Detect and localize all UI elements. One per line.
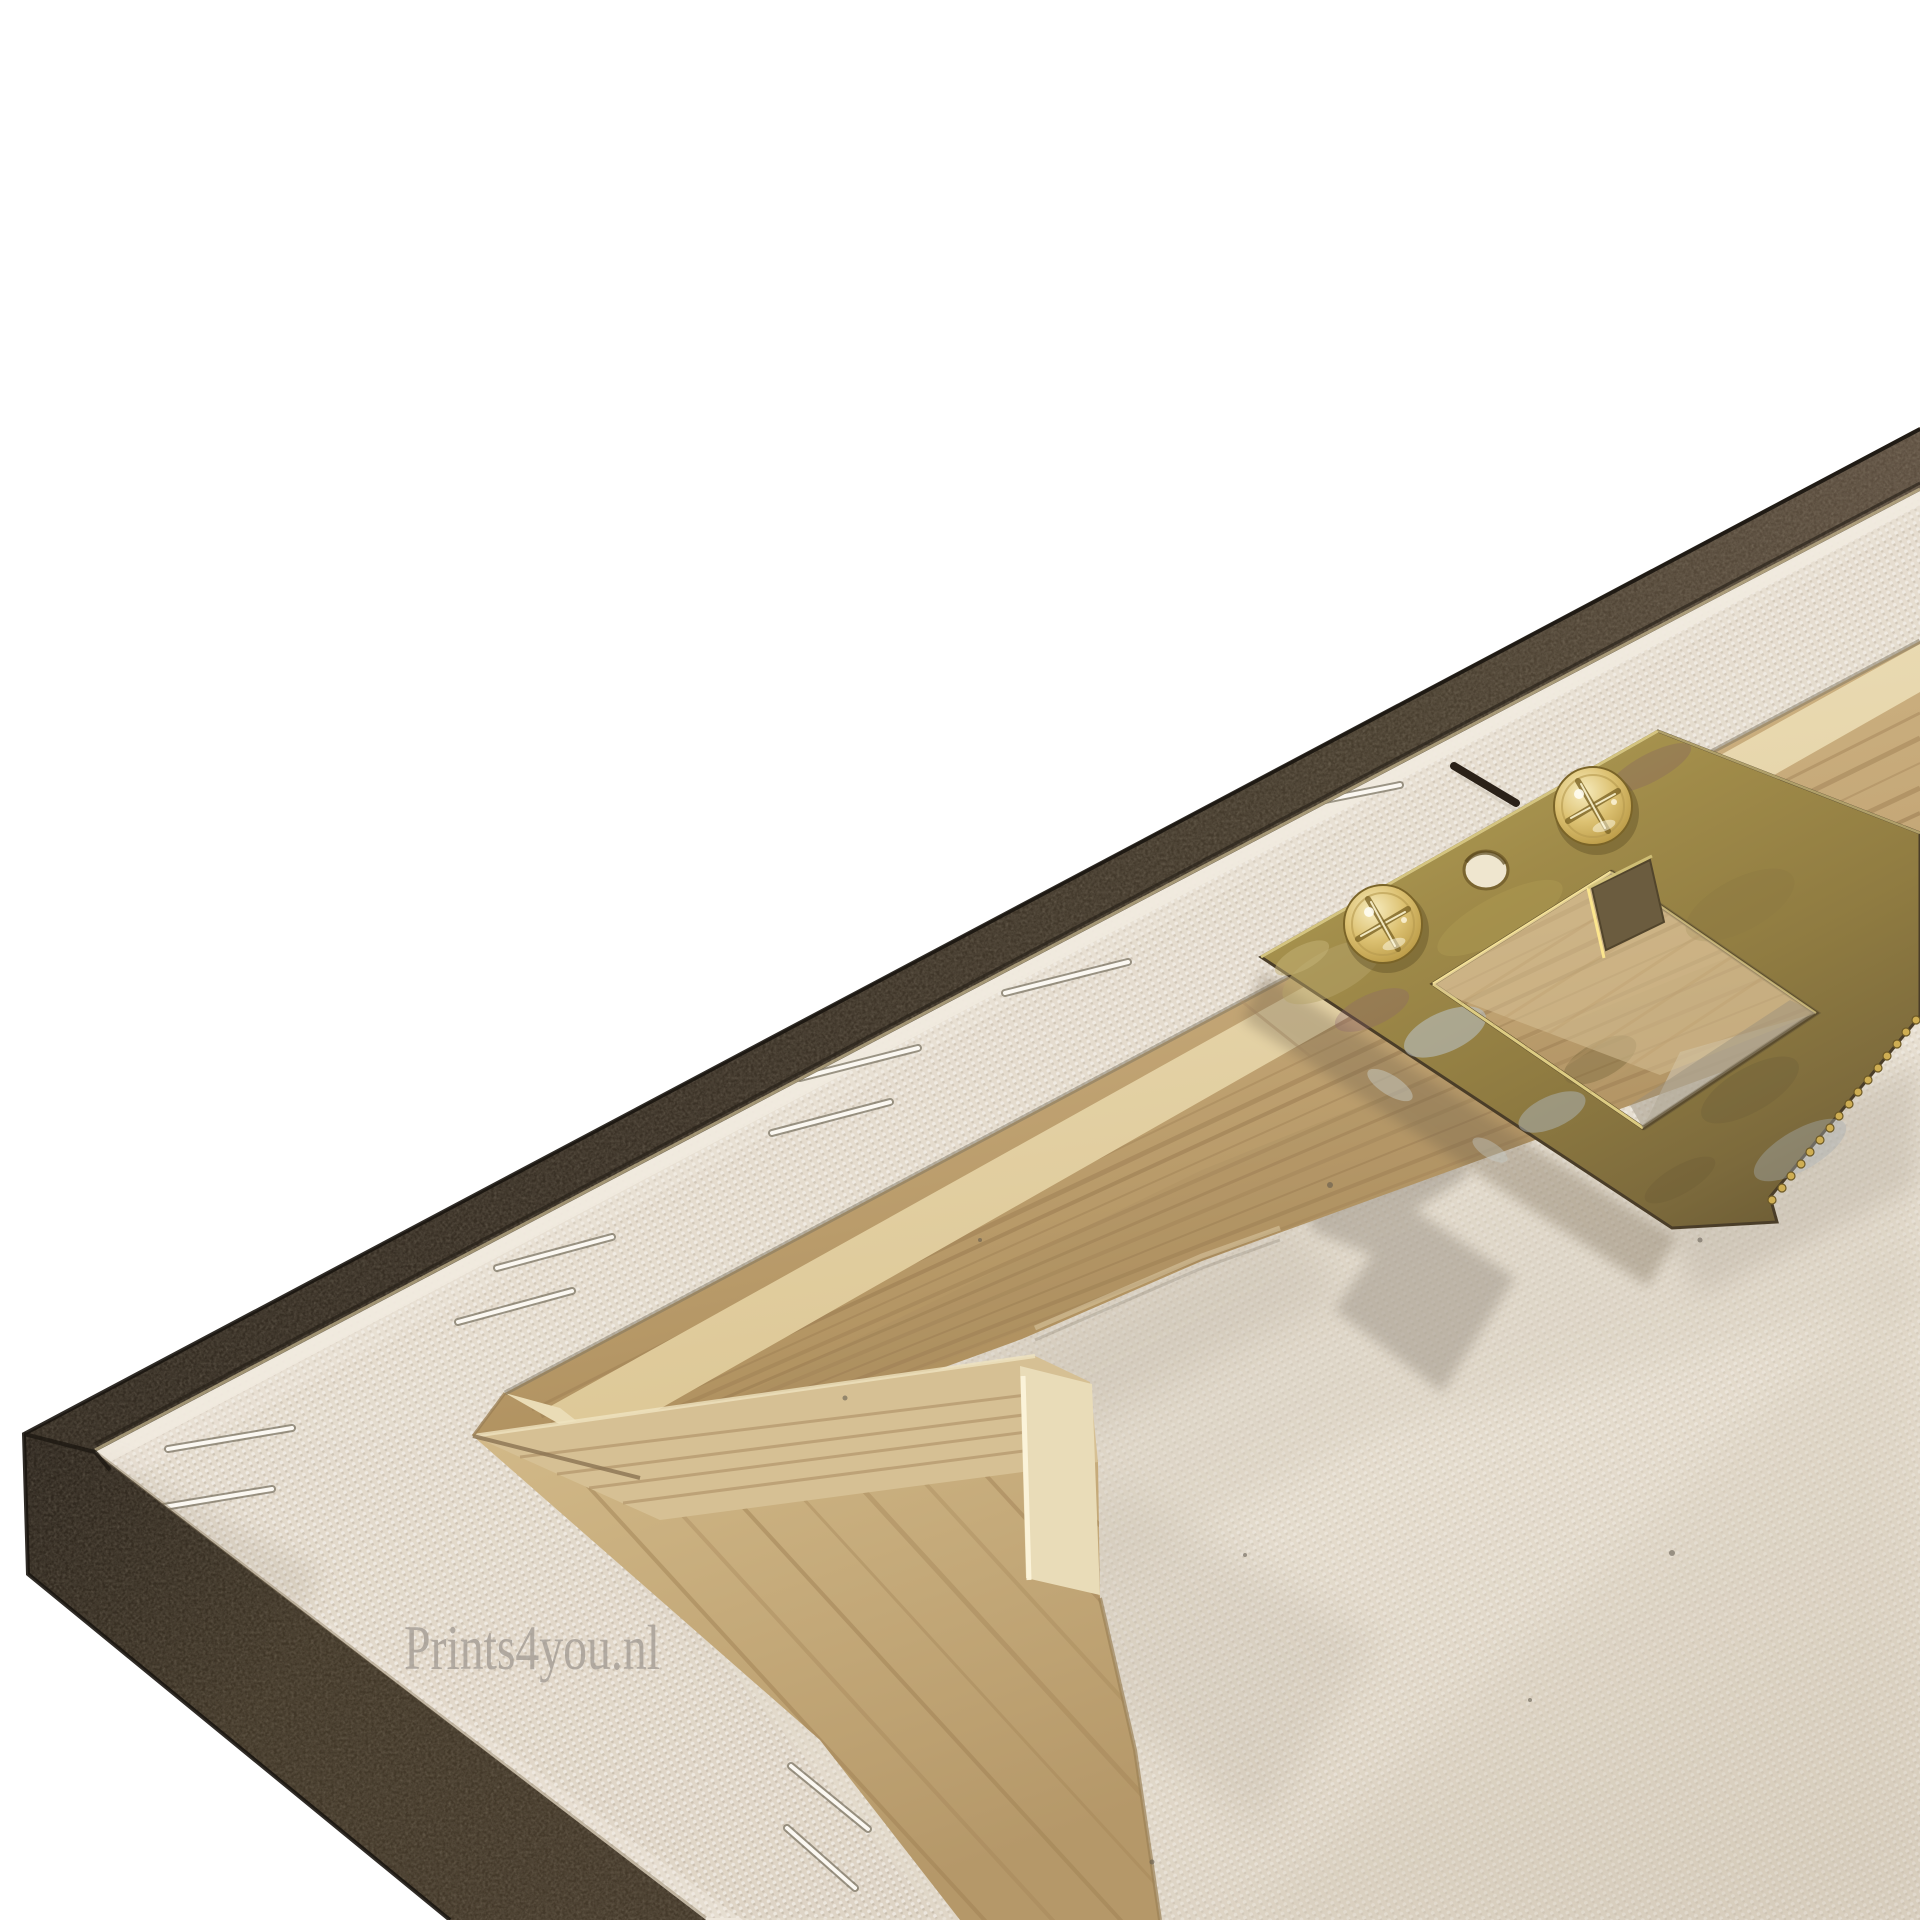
svg-text:Prints4you.nl: Prints4you.nl <box>404 1612 660 1683</box>
